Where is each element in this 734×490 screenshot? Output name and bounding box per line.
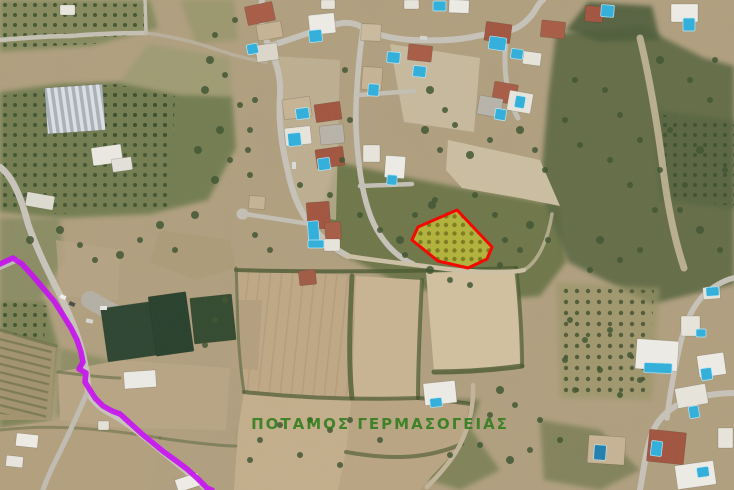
place-name-label: ΠΟΤΑΜΟΣ ΓΕΡΜΑΣΟΓΕΙΑΣ xyxy=(251,415,509,433)
map-viewport[interactable]: ΠΟΤΑΜΟΣ ΓΕΡΜΑΣΟΓΕΙΑΣ xyxy=(0,0,734,490)
satellite-map[interactable]: ΠΟΤΑΜΟΣ ΓΕΡΜΑΣΟΓΕΙΑΣ xyxy=(0,0,734,490)
